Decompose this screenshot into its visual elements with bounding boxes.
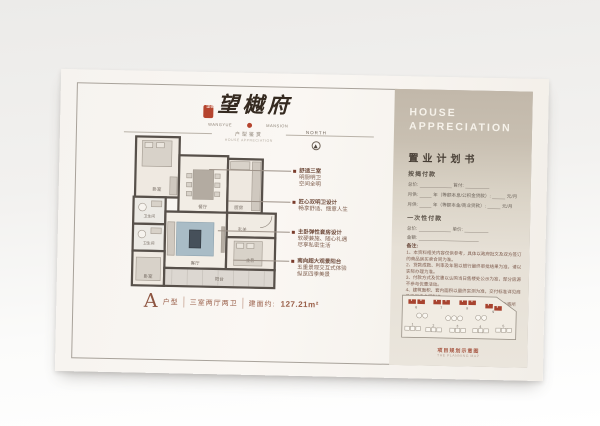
mortgage-section-title: 按揭付款 <box>408 169 436 178</box>
fill-in-blank <box>487 205 500 209</box>
fill-in-blank <box>420 183 452 188</box>
fill-in-blank <box>465 184 489 189</box>
annotation-leader-line <box>228 200 290 202</box>
annotation-bullet <box>291 260 294 263</box>
mortgage-row: 总价: 首付: <box>408 180 523 189</box>
fill-in-blank <box>419 236 479 241</box>
caption-divider <box>184 297 185 308</box>
annotation-line: 尽享私密生活 <box>298 242 373 250</box>
annotation-leader-line <box>218 230 290 233</box>
mortgage-row: 月供: 年（等额本金/商业贷款）: 元/月 <box>407 200 522 209</box>
building-number: 1 <box>411 322 413 326</box>
brand-name: 望樾府 <box>217 88 293 120</box>
unit-type-letter: A <box>144 292 158 311</box>
notes-title: 备注: <box>407 241 419 249</box>
fill-in-blank <box>492 195 505 199</box>
loan-plan-label: 年（等额本息/公积金贷款）: <box>433 191 491 199</box>
brochure-page: 望樾 望樾府 WANGYUE MANSION 户型鉴赏 HOUSE APPREC… <box>55 69 549 381</box>
caption-divider <box>242 298 243 309</box>
brand-subtitle-left: WANGYUE <box>208 122 232 127</box>
annotation-bullet <box>293 170 296 173</box>
unit-type-label: 户型 <box>163 297 179 307</box>
panel-header-line2: APPRECIATION <box>409 119 512 135</box>
building-number: 2 <box>432 324 434 328</box>
siteplan-diagram: 6 7 8 9 1 2 3 4 5 <box>398 291 521 344</box>
mortgage-row: 月供: 年（等额本息/公积金贷款）: 元/月 <box>408 190 523 199</box>
north-indicator: NORTH <box>296 130 336 151</box>
building-number: 3 <box>456 324 458 328</box>
unit-per-month-label: 元/月 <box>502 202 513 209</box>
fill-in-blank <box>420 193 432 197</box>
loan-plan-label: 年（等额本金/商业贷款）: <box>433 201 486 209</box>
total-price-label: 总价: <box>408 180 419 187</box>
unit-price-label: 单价: <box>452 225 463 232</box>
brand-logo: 望樾 望樾府 WANGYUE MANSION <box>150 87 346 132</box>
room-label: 卫生间 <box>143 240 155 245</box>
brand-seal-icon: 望樾 <box>203 105 213 118</box>
onetime-section-title: 一次性付款 <box>407 213 442 222</box>
fill-in-blank <box>464 228 488 233</box>
unit-layout: 三室两厅两卫 <box>190 297 238 308</box>
onetime-row: 总价: 单价: <box>407 224 522 233</box>
panel-header: HOUSE APPRECIATION <box>409 105 512 135</box>
annotation-bullet <box>292 201 295 204</box>
room-label: 卫生间 <box>144 213 156 218</box>
appreciation-panel: HOUSE APPRECIATION 置业计划书 按揭付款 总价: 首付: 月供… <box>389 89 533 368</box>
building-number: 5 <box>502 324 504 328</box>
compass-icon <box>311 141 320 150</box>
annotation-leader-line <box>209 169 291 172</box>
total-price-label: 总价: <box>407 224 418 231</box>
onetime-row: 金额: <box>407 233 522 242</box>
down-payment-label: 首付: <box>453 181 464 188</box>
building-number: 4 <box>479 325 481 329</box>
unit-area-label: 建面约: <box>249 298 276 309</box>
building-number: 7 <box>440 306 442 310</box>
brand-seal-text: 望樾 <box>206 105 211 108</box>
building-number: 8 <box>466 306 468 310</box>
amount-label: 金额: <box>407 233 418 240</box>
plan-book-title: 置业计划书 <box>408 149 478 165</box>
fill-in-blank <box>419 203 431 207</box>
annotation-line: 空间全明 <box>299 181 374 189</box>
annotation-line: 纵览四季美景 <box>297 271 372 279</box>
unit-caption: A 户型 三室两厅两卫 建面约: 127.21m² <box>116 291 346 315</box>
building-number: 6 <box>415 305 417 309</box>
fill-in-blank <box>419 227 451 232</box>
monthly-label: 月供: <box>407 200 418 207</box>
building-number: 9 <box>492 310 494 314</box>
unit-per-month-label: 元/月 <box>507 192 518 199</box>
annotation-bullet <box>292 231 295 234</box>
monthly-label: 月供: <box>408 190 419 197</box>
brand-mini-seal-icon <box>247 123 252 128</box>
unit-area-value: 127.21m² <box>280 300 318 310</box>
annotation-leader-line <box>233 260 289 262</box>
brand-subtitle-right: MANSION <box>266 123 288 128</box>
north-label: NORTH <box>306 130 326 135</box>
photo-backdrop: 望樾 望樾府 WANGYUE MANSION 户型鉴赏 HOUSE APPREC… <box>0 0 600 426</box>
annotation-line: 畅享舒适、惬意人生 <box>298 205 373 213</box>
